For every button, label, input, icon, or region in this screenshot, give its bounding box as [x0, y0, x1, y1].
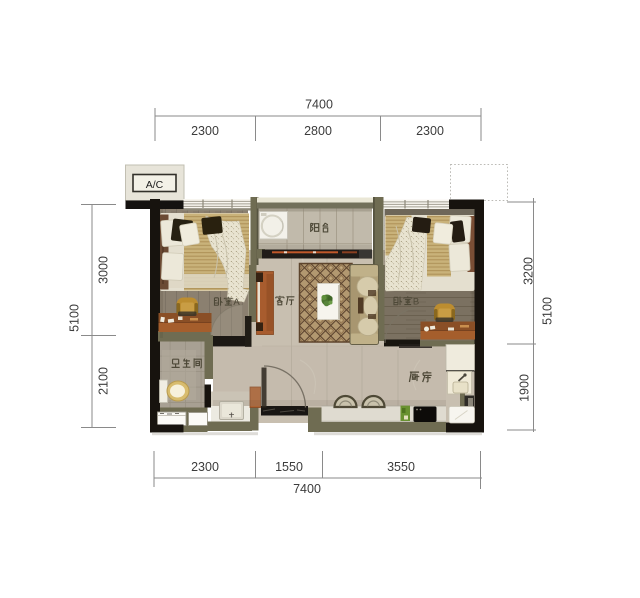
svg-text:2800: 2800 — [304, 124, 332, 138]
svg-text:1900: 1900 — [518, 374, 532, 402]
svg-text:7400: 7400 — [305, 98, 333, 112]
svg-text:3200: 3200 — [522, 257, 536, 285]
svg-text:5100: 5100 — [68, 304, 82, 332]
svg-text:2300: 2300 — [191, 460, 219, 474]
svg-text:A: A — [233, 297, 240, 308]
svg-text:5100: 5100 — [541, 297, 555, 325]
svg-text:A/C: A/C — [146, 179, 164, 191]
svg-text:7400: 7400 — [293, 482, 321, 496]
svg-text:B: B — [413, 297, 419, 308]
svg-text:2100: 2100 — [97, 367, 111, 395]
svg-text:3550: 3550 — [387, 460, 415, 474]
svg-text:2300: 2300 — [191, 124, 219, 138]
svg-text:1550: 1550 — [275, 460, 303, 474]
svg-text:2300: 2300 — [416, 124, 444, 138]
svg-text:3000: 3000 — [97, 256, 111, 284]
